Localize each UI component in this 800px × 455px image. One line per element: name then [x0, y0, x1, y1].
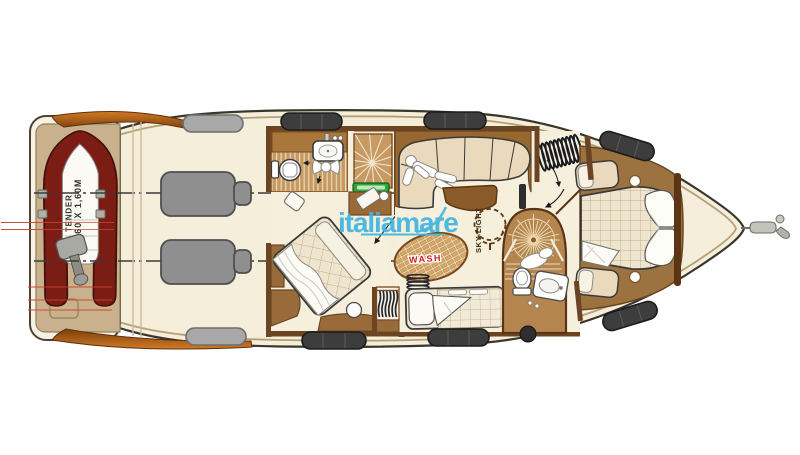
svg-text:2.60 X 1,60M: 2.60 X 1,60M: [73, 179, 83, 243]
svg-text:SKY-LIGHT: SKY-LIGHT: [474, 208, 483, 253]
svg-text:italiamare: italiamare: [338, 207, 458, 238]
